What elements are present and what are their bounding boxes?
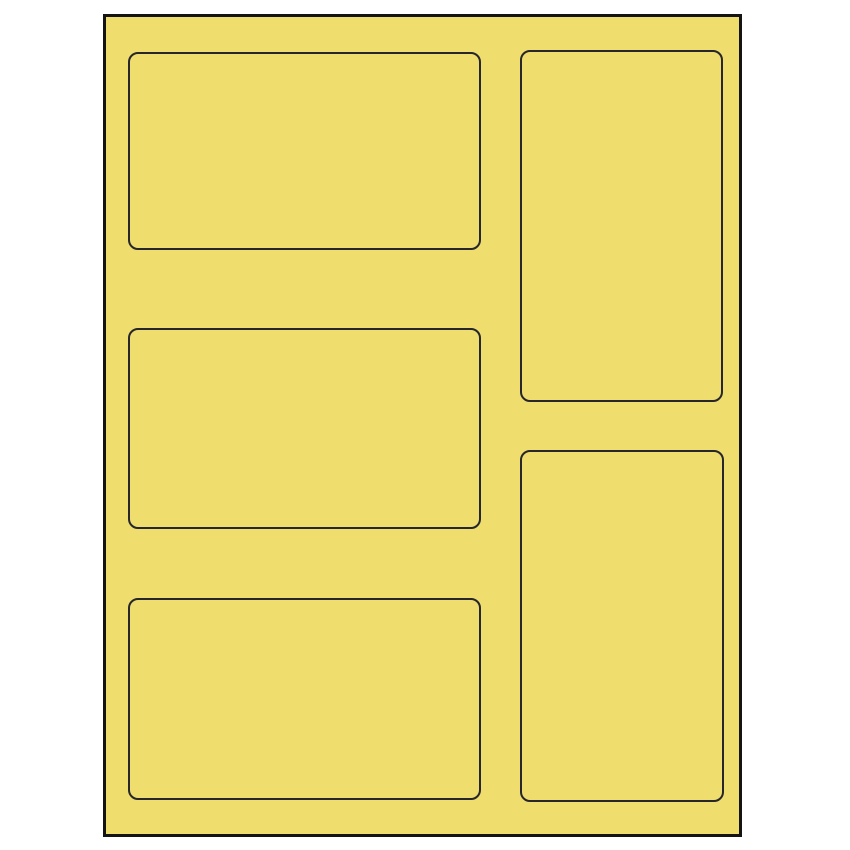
page-background	[0, 0, 850, 850]
label-slot-left-top	[128, 52, 481, 250]
label-slot-right-bottom	[520, 450, 724, 802]
label-slot-right-top	[520, 50, 723, 402]
label-sheet	[103, 14, 742, 837]
label-slot-left-middle	[128, 328, 481, 529]
label-slot-left-bottom	[128, 598, 481, 800]
